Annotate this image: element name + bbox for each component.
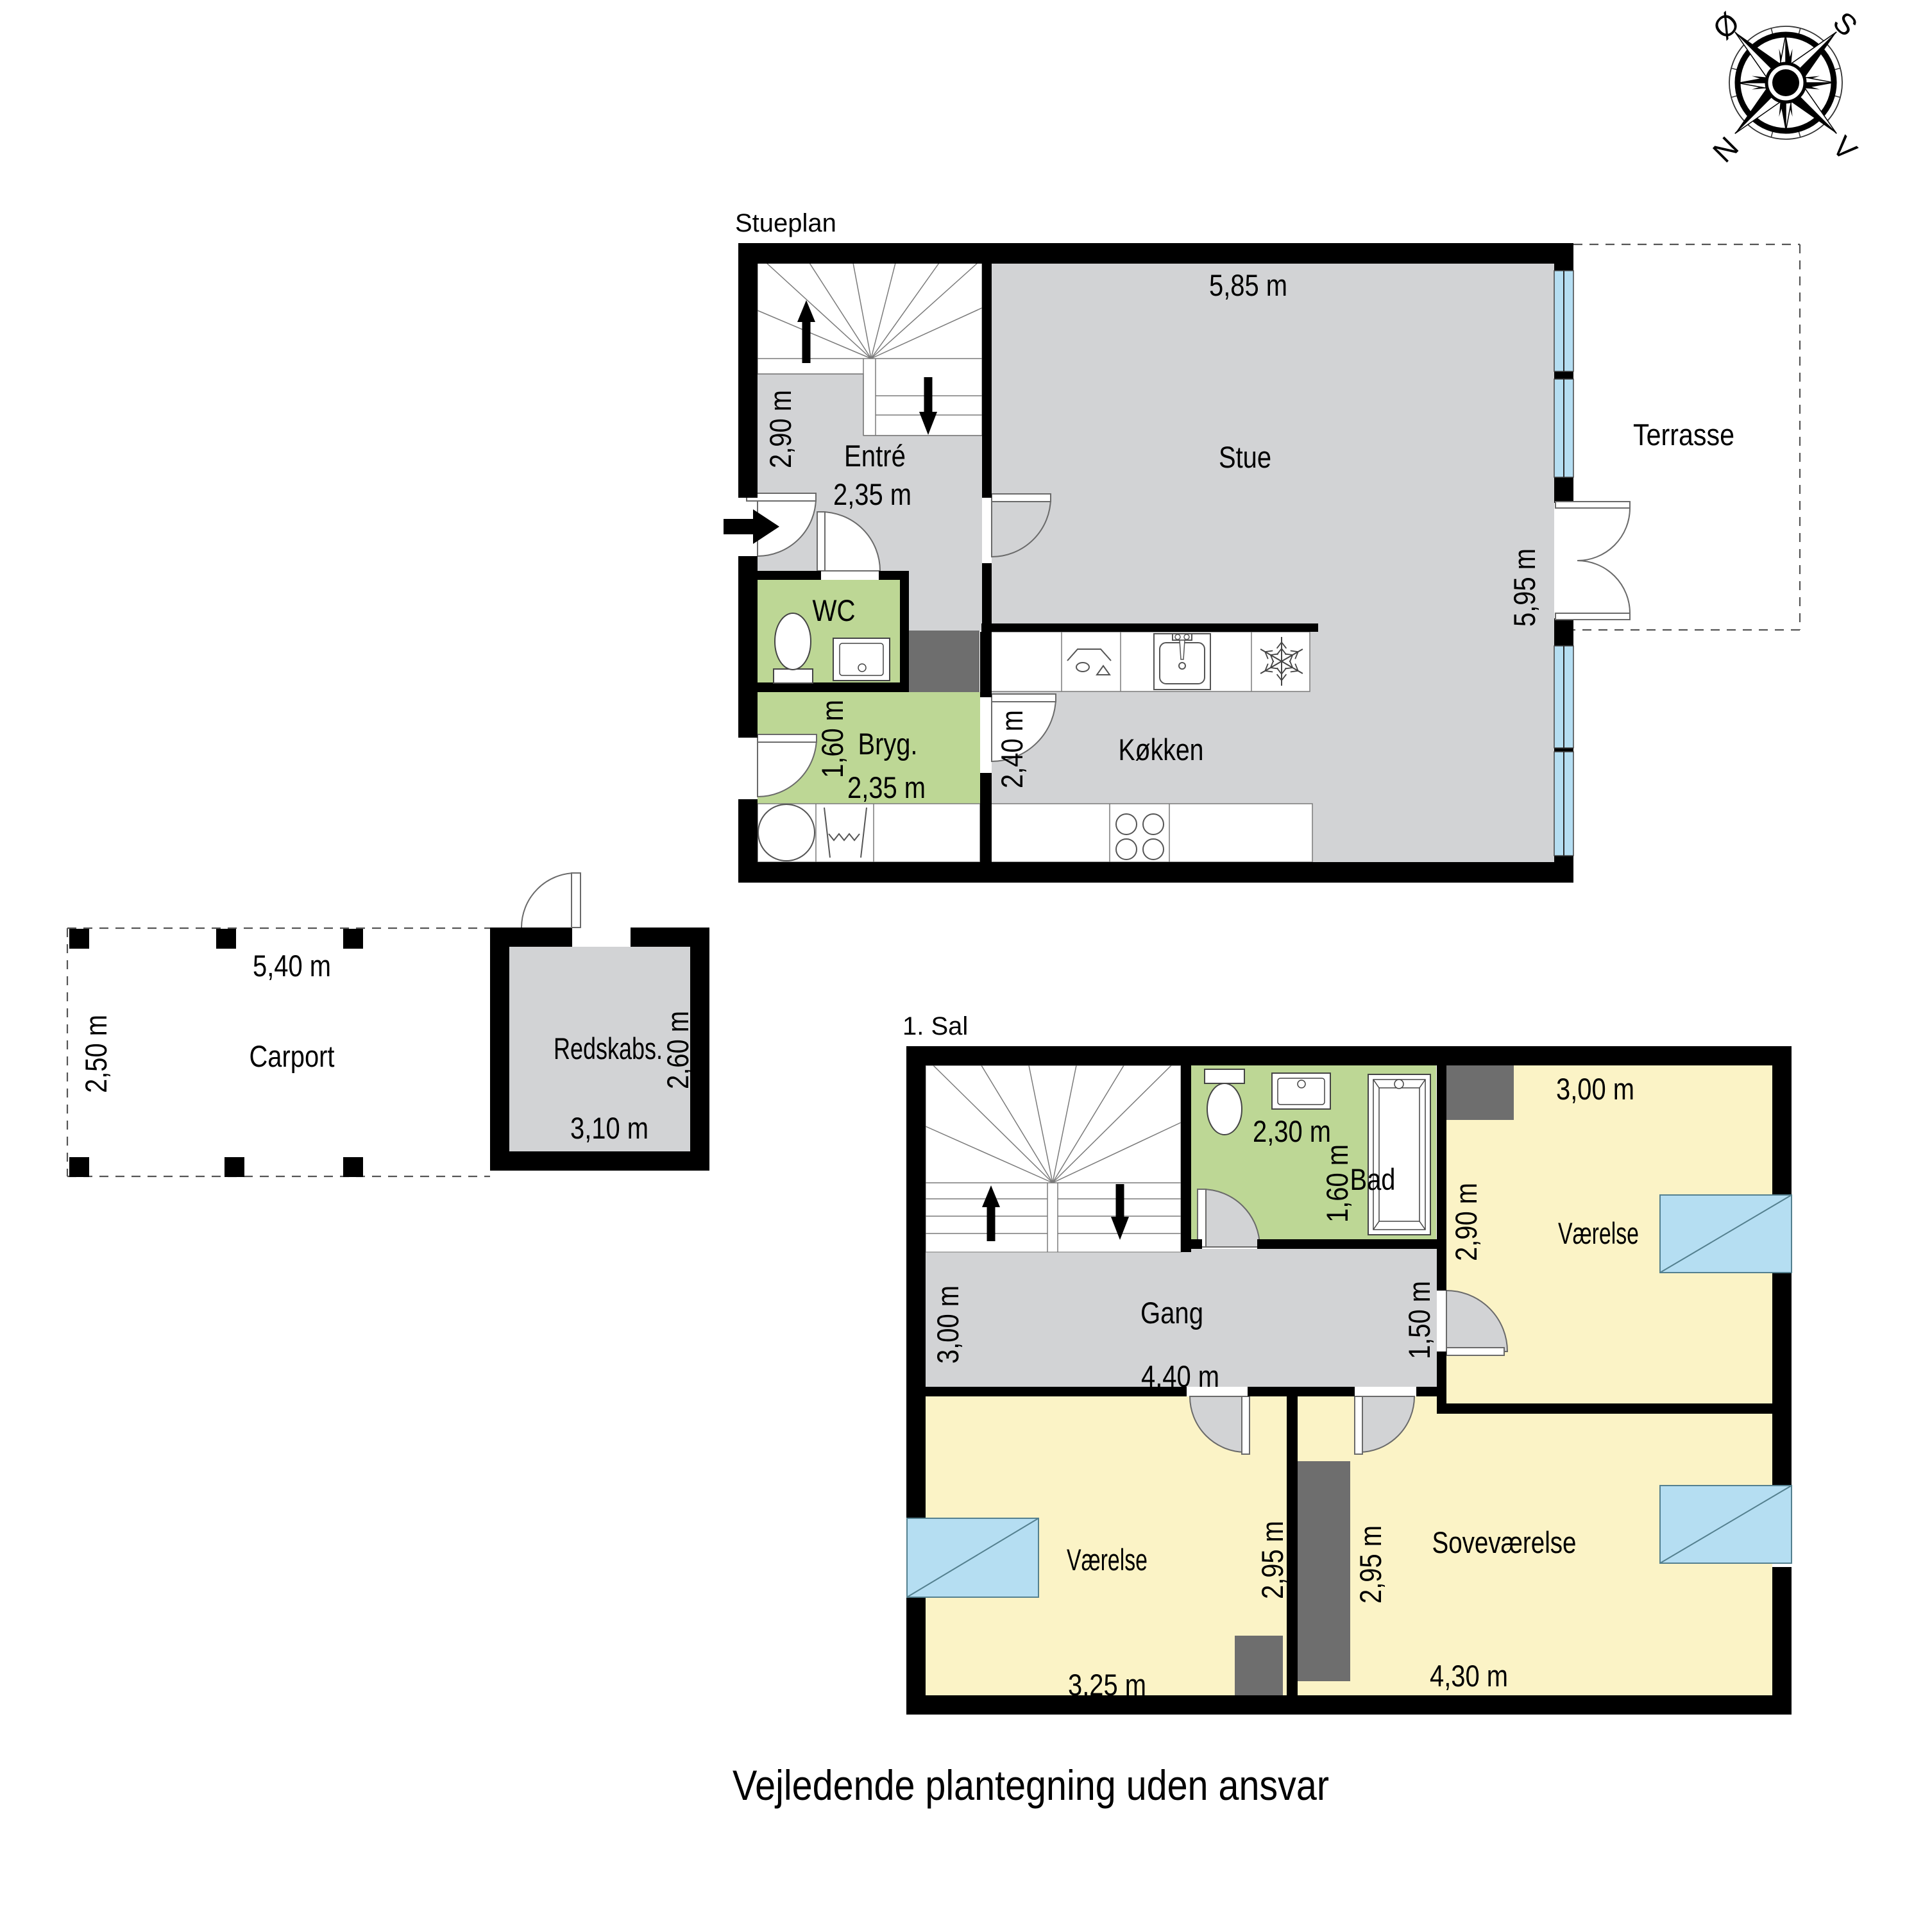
svg-text:1,50 m: 1,50 m	[1402, 1281, 1436, 1359]
svg-text:3,10 m: 3,10 m	[570, 1111, 648, 1145]
svg-text:Stueplan: Stueplan	[735, 209, 836, 237]
svg-text:Gang: Gang	[1140, 1296, 1203, 1330]
svg-text:3,25 m: 3,25 m	[1068, 1668, 1146, 1702]
svg-text:Værelse: Værelse	[1067, 1543, 1148, 1577]
svg-text:2,90 m: 2,90 m	[1449, 1183, 1483, 1261]
svg-text:5,40 m: 5,40 m	[253, 949, 331, 983]
svg-text:2,40 m: 2,40 m	[995, 710, 1029, 788]
svg-text:1,60 m: 1,60 m	[1320, 1144, 1354, 1223]
svg-text:Værelse: Værelse	[1558, 1216, 1639, 1250]
svg-text:2,95 m: 2,95 m	[1353, 1525, 1387, 1604]
svg-text:2,50 m: 2,50 m	[79, 1015, 113, 1093]
svg-text:Vejledende plantegning uden an: Vejledende plantegning uden ansvar	[733, 1761, 1329, 1809]
svg-text:Terrasse: Terrasse	[1633, 418, 1734, 452]
svg-text:1. Sal: 1. Sal	[902, 1012, 968, 1040]
svg-text:2,35 m: 2,35 m	[847, 770, 926, 804]
svg-text:2,35 m: 2,35 m	[833, 477, 911, 511]
svg-text:Stue: Stue	[1219, 440, 1271, 474]
svg-text:Køkken: Køkken	[1119, 733, 1204, 767]
svg-text:Redskabs.: Redskabs.	[554, 1031, 663, 1065]
svg-text:3,00 m: 3,00 m	[931, 1285, 965, 1364]
svg-text:5,95 m: 5,95 m	[1507, 548, 1541, 627]
svg-text:5,85 m: 5,85 m	[1209, 268, 1287, 302]
svg-text:2,30 m: 2,30 m	[1253, 1114, 1331, 1148]
svg-text:2,90 m: 2,90 m	[763, 390, 797, 468]
svg-text:3,00 m: 3,00 m	[1556, 1072, 1634, 1106]
svg-text:4,30 m: 4,30 m	[1430, 1659, 1508, 1693]
svg-text:Entré: Entré	[844, 439, 906, 473]
svg-text:Bad: Bad	[1350, 1162, 1396, 1196]
svg-text:Bryg.: Bryg.	[858, 727, 918, 761]
svg-text:1,60 m: 1,60 m	[815, 700, 849, 778]
svg-text:4,40 m: 4,40 m	[1141, 1359, 1219, 1393]
svg-text:Soveværelse: Soveværelse	[1432, 1525, 1577, 1559]
svg-text:WC: WC	[813, 593, 856, 627]
svg-text:2,60 m: 2,60 m	[661, 1011, 695, 1089]
svg-text:Carport: Carport	[250, 1039, 335, 1073]
svg-text:2,95 m: 2,95 m	[1255, 1521, 1289, 1599]
